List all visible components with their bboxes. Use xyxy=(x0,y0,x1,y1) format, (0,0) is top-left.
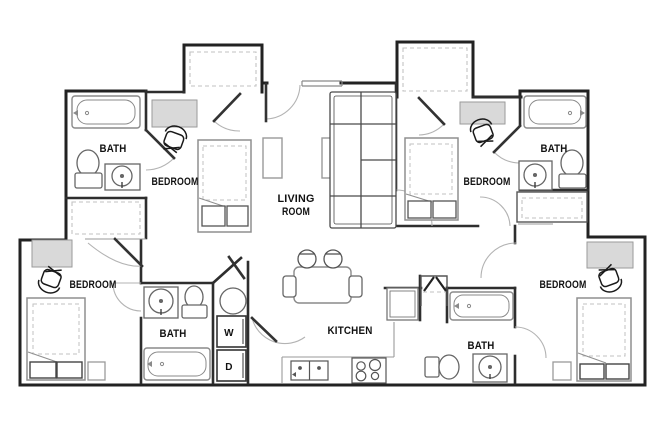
bedroom-bottom-right: BEDROOM xyxy=(540,242,634,381)
label-bath-top-right: BATH xyxy=(541,143,568,155)
desk-icon xyxy=(587,242,633,268)
bath-bottom-left: BATH W D xyxy=(144,286,246,381)
dryer-icon: D xyxy=(217,350,246,381)
dining-table-icon xyxy=(294,267,351,303)
floor-plan-page: BATH BEDROOM LIVING ROOM xyxy=(0,0,660,445)
water-heater-icon xyxy=(220,288,246,314)
label-bath-bottom-right: BATH xyxy=(468,340,495,352)
label-bedroom-top-left: BEDROOM xyxy=(152,176,199,188)
washer-icon: W xyxy=(217,316,246,347)
label-kitchen: KITCHEN xyxy=(328,325,373,337)
pillow-icon xyxy=(606,364,629,379)
door-swing-icon xyxy=(146,158,174,170)
window-icon xyxy=(302,81,342,86)
bedroom-top-left: BEDROOM xyxy=(152,100,252,232)
door-swing-icon xyxy=(481,243,516,278)
desk-chair-icon xyxy=(36,264,66,296)
desk-chair-icon xyxy=(160,123,190,155)
bed-icon xyxy=(577,298,631,381)
sofa-icon xyxy=(330,92,396,228)
sink-icon xyxy=(105,164,140,190)
kitchen: KITCHEN xyxy=(282,250,418,383)
dining-chair-icon xyxy=(349,276,362,297)
door-swing-icon xyxy=(252,318,305,344)
closet-rod-icon xyxy=(72,202,140,234)
door-leaf xyxy=(419,98,444,124)
stool-icon xyxy=(324,250,342,268)
closet-rod-icon xyxy=(403,48,467,91)
toilet-icon xyxy=(559,150,586,188)
bed-icon xyxy=(405,138,458,220)
pillow-icon xyxy=(408,201,431,218)
toilet-icon xyxy=(425,355,459,379)
pillow-icon xyxy=(57,362,82,378)
closet-rod-icon xyxy=(522,198,582,218)
door-leaf xyxy=(494,126,520,152)
bath-top-left: BATH xyxy=(72,96,140,190)
door-swing-icon xyxy=(214,121,240,131)
door-leaf xyxy=(252,318,276,341)
interior-walls xyxy=(66,83,588,383)
toilet-icon xyxy=(182,286,207,318)
floor-plan: BATH BEDROOM LIVING ROOM xyxy=(0,0,660,445)
desk-icon xyxy=(152,100,197,127)
pillow-icon xyxy=(433,201,456,218)
living-room: LIVING ROOM xyxy=(263,92,396,228)
label-living-line2: ROOM xyxy=(282,206,310,218)
label-bedroom-top-right: BEDROOM xyxy=(464,176,511,188)
toilet-icon xyxy=(75,150,102,188)
pillow-icon xyxy=(227,206,248,226)
bedroom-bottom-left: BEDROOM xyxy=(27,240,117,380)
bed-icon xyxy=(27,298,85,380)
door-swing-icon xyxy=(494,152,519,163)
desk-icon xyxy=(32,240,72,267)
pillow-icon xyxy=(30,362,56,378)
bathtub-icon xyxy=(450,292,513,320)
bed-icon xyxy=(198,140,251,232)
sink-icon xyxy=(519,161,552,190)
door-swing-icon xyxy=(515,327,546,358)
label-bedroom-bottom-left: BEDROOM xyxy=(70,279,117,291)
tv-stand-icon xyxy=(263,138,282,178)
desk-icon xyxy=(460,102,505,124)
label-dryer: D xyxy=(225,362,232,373)
door-swing-icon xyxy=(266,85,300,119)
bath-bottom-right: BATH xyxy=(425,292,513,382)
nightstand xyxy=(88,362,105,380)
label-living-line1: LIVING xyxy=(278,193,315,205)
label-washer: W xyxy=(224,328,234,339)
bathtub-icon xyxy=(524,96,586,128)
door-leaf xyxy=(146,130,174,158)
label-bath-top-left: BATH xyxy=(100,143,127,155)
refrigerator-icon xyxy=(387,288,418,320)
range-icon xyxy=(352,358,386,383)
pillow-icon xyxy=(580,364,604,379)
pillow-icon xyxy=(202,206,225,226)
pantry-icon xyxy=(421,276,447,306)
stool-icon xyxy=(298,250,316,268)
bedroom-top-right: BEDROOM xyxy=(405,102,511,220)
closet-track-lines xyxy=(85,224,553,239)
dining-chair-icon xyxy=(283,276,296,297)
door-swing-icon xyxy=(419,124,444,135)
closet-rod-icon xyxy=(190,52,256,86)
door-swing-icon xyxy=(113,283,141,311)
label-bath-bottom-left: BATH xyxy=(160,328,187,340)
bath-top-right: BATH xyxy=(519,96,586,190)
kitchen-sink-icon xyxy=(291,361,328,380)
bathtub-icon xyxy=(72,96,140,128)
nightstand xyxy=(553,362,571,380)
bathtub-icon xyxy=(144,348,210,380)
door-swing-icon xyxy=(480,197,510,226)
sink-icon xyxy=(144,287,178,318)
sink-icon xyxy=(473,354,507,382)
door-swing-icon xyxy=(88,243,142,266)
door-leaf xyxy=(214,94,240,121)
label-bedroom-bottom-right: BEDROOM xyxy=(540,279,587,291)
